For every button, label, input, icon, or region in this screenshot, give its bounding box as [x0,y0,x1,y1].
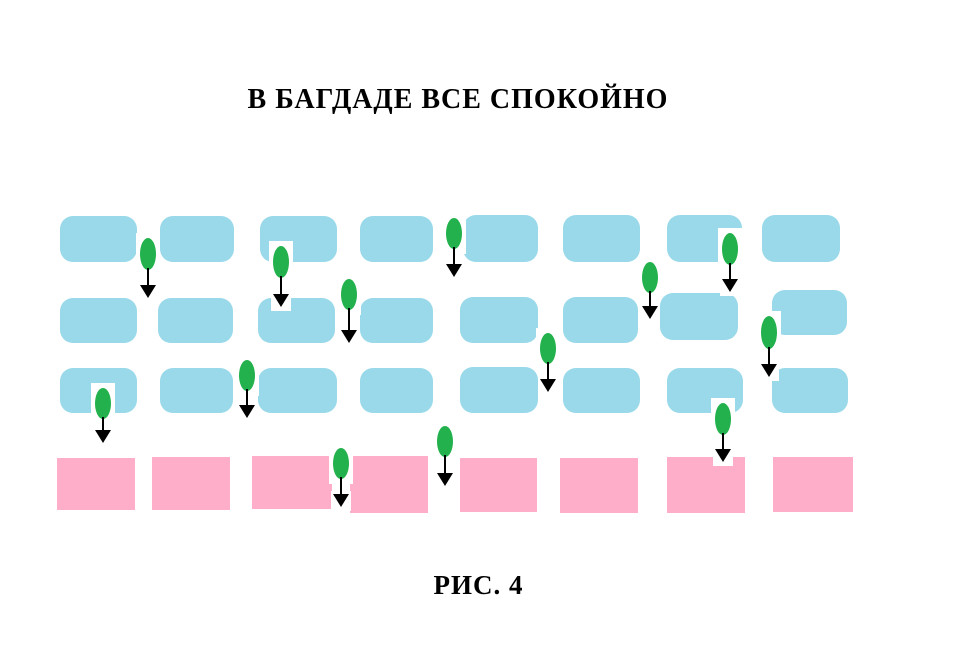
brick-block [772,368,848,413]
figure-caption: РИС. 4 [0,570,957,601]
down-arrow-icon [140,285,156,298]
ground-block [560,458,638,513]
down-arrow-shaft [444,455,446,474]
ground-block [667,457,745,513]
seed-icon [341,279,357,310]
down-arrow-icon [540,379,556,392]
seed-icon [95,388,111,419]
ground-block [152,457,230,510]
brick-block [60,298,137,343]
ground-block [252,456,332,509]
brick-block [563,297,638,343]
down-arrow-icon [642,306,658,319]
down-arrow-shaft [340,477,342,495]
seed-icon [642,262,658,293]
brick-block [360,298,433,343]
down-arrow-icon [446,264,462,277]
seed-icon [273,246,289,278]
down-arrow-icon [715,449,731,462]
down-arrow-shaft [547,362,549,380]
down-arrow-shaft [722,433,724,450]
down-arrow-shaft [453,247,455,265]
brick-block [762,215,840,262]
brick-block [772,290,847,335]
seed-icon [722,233,738,265]
seed-icon [239,360,255,391]
brick-block [460,367,538,413]
ground-block [773,457,853,512]
down-arrow-icon [341,330,357,343]
brick-block [360,368,433,413]
brick-block [563,368,640,413]
down-arrow-shaft [348,308,350,331]
down-arrow-icon [333,494,349,507]
brick-block [160,368,233,413]
down-arrow-shaft [768,347,770,365]
ground-block [350,456,428,513]
seed-icon [540,333,556,364]
seed-icon [140,238,156,270]
down-arrow-icon [273,294,289,307]
figure-title: В БАГДАДЕ ВСЕ СПОКОЙНО [0,84,916,116]
down-arrow-icon [722,279,738,292]
brick-block [463,215,538,262]
down-arrow-shaft [649,291,651,307]
down-arrow-shaft [729,263,731,280]
down-arrow-shaft [147,268,149,286]
down-arrow-shaft [102,417,104,431]
seed-icon [446,218,462,249]
seed-icon [761,316,777,349]
down-arrow-shaft [280,276,282,295]
down-arrow-icon [239,405,255,418]
ground-block [57,458,135,510]
brick-block [563,215,640,262]
seed-icon [333,448,349,479]
down-arrow-shaft [246,389,248,406]
seed-icon [437,426,453,457]
brick-block [160,216,234,262]
down-arrow-icon [761,364,777,377]
ground-block [460,458,537,512]
brick-block [258,298,335,343]
figure-canvas: В БАГДАДЕ ВСЕ СПОКОЙНО РИС. 4 [0,0,957,662]
down-arrow-icon [95,430,111,443]
brick-block [60,216,137,262]
brick-block [460,297,538,343]
brick-block [660,293,738,340]
brick-block [360,216,433,262]
brick-block [158,298,233,343]
brick-block [258,368,337,413]
down-arrow-icon [437,473,453,486]
seed-icon [715,403,731,435]
